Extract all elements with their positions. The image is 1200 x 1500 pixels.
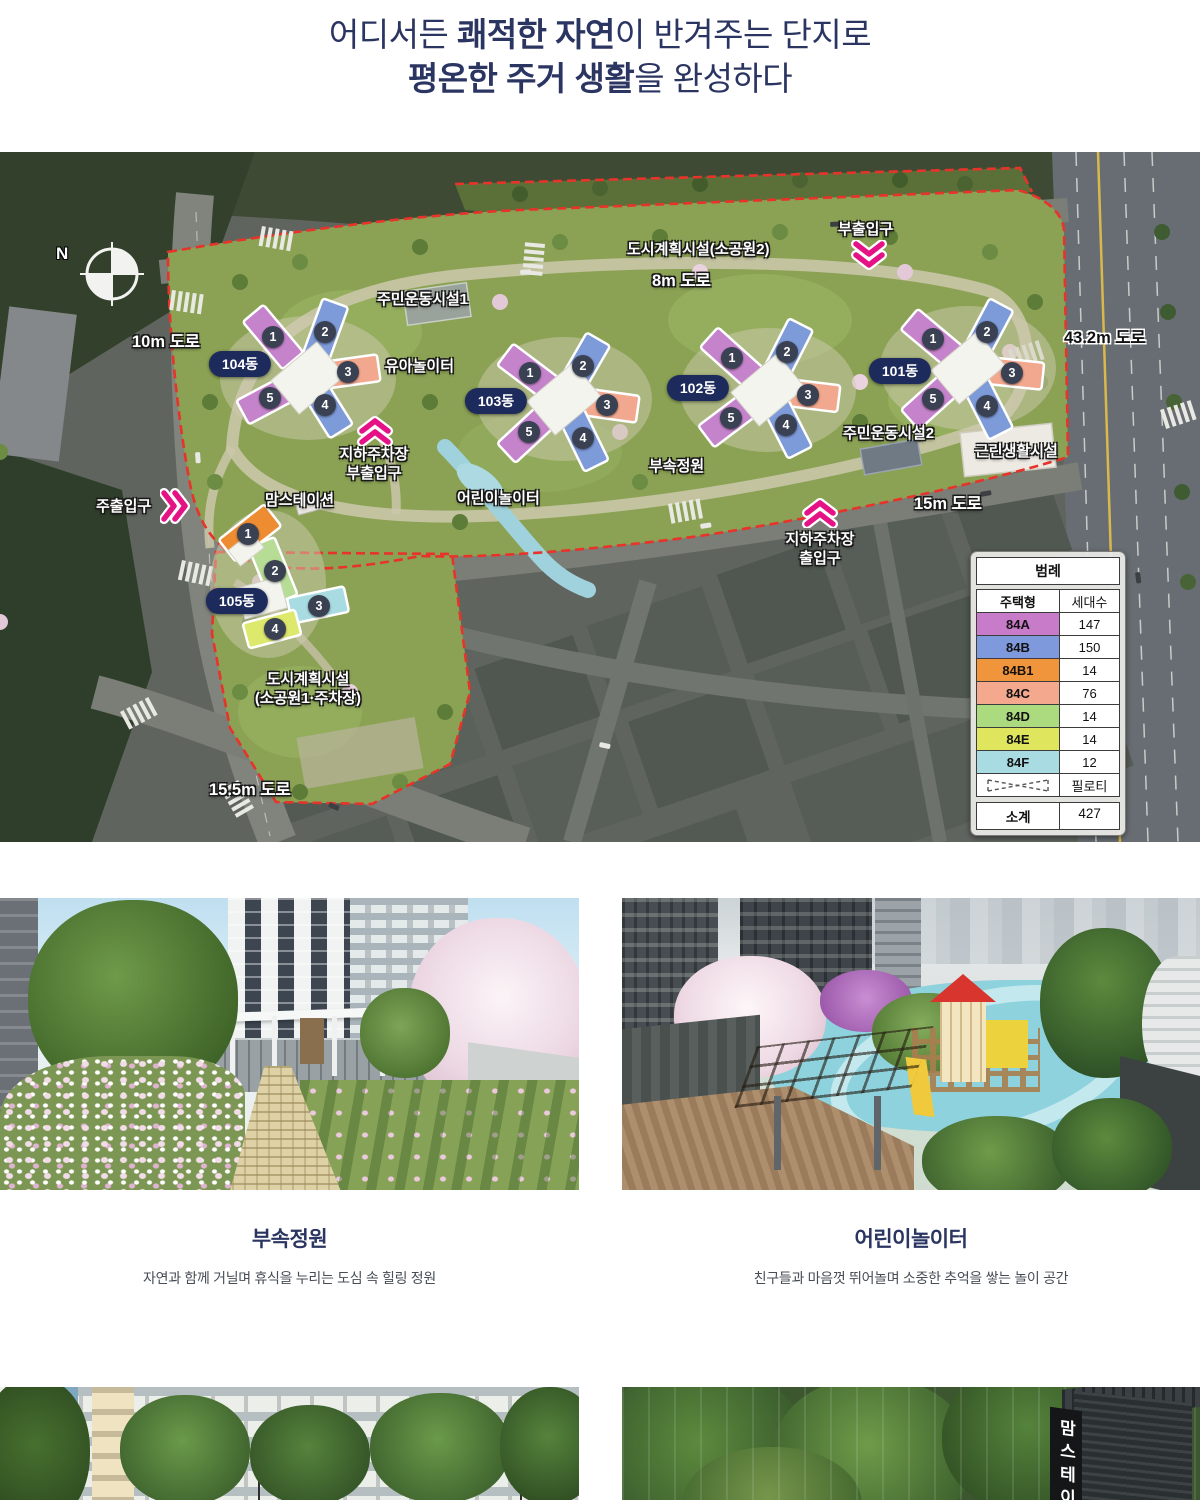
page-title: 어디서든 쾌적한 자연이 반겨주는 단지로 평온한 주거 생활을 완성하다 [0, 0, 1200, 101]
title-text: 을 완성하다 [634, 60, 792, 97]
page: 어디서든 쾌적한 자연이 반겨주는 단지로 평온한 주거 생활을 완성하다 [0, 0, 1200, 1500]
garden-pergola-curtain [300, 1018, 324, 1064]
legend-table: 주택형 세대수 84A 147 84B 150 84B1 14 84C 76 [976, 589, 1120, 797]
label-line: 출입구 [772, 550, 868, 569]
legend-count: 14 [1059, 728, 1119, 751]
label-neighborhood-facility: 근린생활시설 [975, 443, 1058, 462]
unit-circle: 2 [264, 560, 286, 582]
label-underground-main-entrance: 지하주차장 출입구 [772, 531, 868, 569]
unit-circle: 2 [976, 321, 998, 343]
title-text: 어디서든 [329, 16, 457, 53]
label-garden: 부속정원 [649, 458, 704, 477]
unit-circle: 1 [519, 362, 541, 384]
legend-panel: 범례 주택형 세대수 84A 147 84B 150 84B1 14 [970, 551, 1126, 836]
title-emphasis: 평온한 주거 생활 [408, 60, 634, 97]
pill-building-104: 104동 [209, 351, 271, 377]
unit-circle: 2 [572, 355, 594, 377]
garden-pergola-post [332, 1016, 337, 1076]
label-community1: 주민운동시설1 [377, 291, 468, 310]
unit-circle: 1 [721, 347, 743, 369]
unit-circle: 5 [720, 407, 742, 429]
unit-circle: 3 [1001, 362, 1023, 384]
feature-garden: 부속정원 자연과 함께 거닐며 휴식을 누리는 도심 속 힐링 정원 [0, 898, 579, 1288]
label-park1: 도시계획시설 (소공원1·주차장) [248, 671, 368, 709]
legend-header-row: 주택형 세대수 [977, 590, 1120, 613]
legend-row: 84B1 14 [977, 659, 1120, 682]
photo-row-2: 맘스테이션 [0, 1387, 1200, 1500]
legend-row: 84E 14 [977, 728, 1120, 751]
playground-pergola-post [774, 1096, 781, 1170]
playground-playhouse [940, 998, 986, 1082]
unit-circle: 3 [308, 595, 330, 617]
label-park2: 도시계획시설(소공원2) [627, 241, 770, 260]
sub-entrance-arrow-icon [849, 240, 889, 272]
label-toddler-playground: 유아놀이터 [385, 358, 454, 377]
legend-title: 범례 [976, 557, 1120, 585]
legend-piloti-row: 필로티 [977, 774, 1120, 797]
feature-title-garden: 부속정원 [0, 1223, 579, 1253]
pill-building-103: 103동 [465, 388, 527, 414]
playground-playhouse-roof [930, 974, 996, 1002]
label-underground-sub-entrance: 지하주차장 부출입구 [324, 446, 424, 484]
legend-type: 84D [977, 705, 1060, 728]
unit-circle: 2 [776, 341, 798, 363]
pill-building-102: 102동 [667, 375, 729, 401]
unit-circle: 4 [976, 395, 998, 417]
label-line: 부출입구 [324, 465, 424, 484]
label-road-15-5m: 15.5m 도로 [209, 780, 291, 801]
legend-count: 150 [1059, 636, 1119, 659]
legend-type: 84F [977, 751, 1060, 774]
legend-count: 14 [1059, 659, 1119, 682]
photo-street [0, 1387, 579, 1500]
legend-count: 147 [1059, 613, 1119, 636]
photo-playground [622, 898, 1200, 1190]
legend-col-type: 주택형 [977, 590, 1060, 613]
label-road-15m: 15m 도로 [914, 494, 982, 515]
label-line: 지하주차장 [324, 446, 424, 465]
legend-type: 84B [977, 636, 1060, 659]
legend-count: 76 [1059, 682, 1119, 705]
unit-circle: 4 [775, 414, 797, 436]
unit-circle: 3 [797, 384, 819, 406]
legend-type: 84A [977, 613, 1060, 636]
unit-circle: 1 [237, 523, 259, 545]
garden-lawn [300, 1080, 579, 1190]
legend-piloti-label: 필로티 [1059, 774, 1119, 797]
feature-desc-garden: 자연과 함께 거닐며 휴식을 누리는 도심 속 힐링 정원 [0, 1268, 579, 1288]
photo-garden [0, 898, 579, 1190]
street-tree [0, 1387, 90, 1500]
unit-circle: 5 [518, 421, 540, 443]
label-momstation: 맘스테이션 [265, 492, 334, 511]
unit-circle: 4 [314, 394, 336, 416]
label-children-playground: 어린이놀이터 [457, 490, 540, 509]
momstation-booth [1074, 1391, 1192, 1500]
unit-circle: 5 [259, 387, 281, 409]
label-road-8m: 8m 도로 [652, 271, 711, 292]
legend-type: 84B1 [977, 659, 1060, 682]
compass-north-label: N [56, 244, 68, 264]
unit-circle: 4 [572, 427, 594, 449]
unit-circle: 3 [337, 361, 359, 383]
label-road-10m: 10m 도로 [132, 332, 200, 353]
momstation-sign: 맘스테이션 [1050, 1407, 1082, 1500]
street-tree [250, 1405, 370, 1500]
label-line: (소공원1·주차장) [248, 690, 368, 709]
playground-playhouse-wall [986, 1020, 1028, 1068]
legend-total-label: 소계 [977, 803, 1060, 829]
legend-row: 84A 147 [977, 613, 1120, 636]
feature-title-playground: 어린이놀이터 [622, 1223, 1200, 1253]
legend-row: 84B 150 [977, 636, 1120, 659]
label-line: 지하주차장 [772, 531, 868, 550]
label-line: 도시계획시설 [248, 671, 368, 690]
title-line-2: 평온한 주거 생활을 완성하다 [0, 57, 1200, 101]
label-sub-entrance: 부출입구 [838, 221, 893, 240]
playground-bush [922, 1116, 1072, 1190]
street-tree [120, 1395, 250, 1500]
unit-circle: 1 [922, 328, 944, 350]
garden-tree [360, 988, 450, 1078]
title-line-1: 어디서든 쾌적한 자연이 반겨주는 단지로 [0, 13, 1200, 57]
playground-bush [1052, 1098, 1172, 1190]
unit-circle: 4 [264, 618, 286, 640]
label-road-43m: 43.2m 도로 [1064, 328, 1146, 349]
piloti-pattern-icon [977, 774, 1060, 797]
unit-circle: 2 [314, 321, 336, 343]
legend-total-value: 427 [1060, 803, 1119, 829]
legend-count: 14 [1059, 705, 1119, 728]
title-text: 이 반겨주는 단지로 [615, 16, 871, 53]
unit-circle: 5 [922, 388, 944, 410]
garden-flower-field [0, 1056, 245, 1190]
site-plan-map: N 10m 도로 도시계획시설(소공원2) 부출입구 8m 도로 주민운동시설1… [0, 152, 1200, 842]
title-emphasis: 쾌적한 자연 [457, 16, 615, 53]
feature-cards: 부속정원 자연과 함께 거닐며 휴식을 누리는 도심 속 힐링 정원 [0, 898, 1200, 1288]
pill-building-101: 101동 [869, 358, 931, 384]
feature-playground: 어린이놀이터 친구들과 마음껏 뛰어놀며 소중한 추억을 쌓는 놀이 공간 [622, 898, 1200, 1288]
main-entrance-arrow-icon [160, 486, 192, 526]
legend-type: 84E [977, 728, 1060, 751]
underground-sub-arrow-icon [355, 414, 395, 446]
legend-total-row: 소계 427 [976, 802, 1120, 830]
photo-momstation: 맘스테이션 [622, 1387, 1200, 1500]
legend-row: 84D 14 [977, 705, 1120, 728]
legend-row: 84C 76 [977, 682, 1120, 705]
legend-count: 12 [1059, 751, 1119, 774]
street-tree [370, 1393, 510, 1500]
pill-building-105: 105동 [206, 588, 268, 614]
unit-circle: 1 [262, 326, 284, 348]
label-main-entrance: 주출입구 [96, 498, 151, 517]
legend-col-count: 세대수 [1059, 590, 1119, 613]
underground-main-arrow-icon [800, 496, 840, 528]
legend-type: 84C [977, 682, 1060, 705]
playground-pergola-post [874, 1096, 881, 1170]
unit-circle: 3 [596, 394, 618, 416]
label-community2: 주민운동시설2 [843, 425, 934, 444]
feature-desc-playground: 친구들과 마음껏 뛰어놀며 소중한 추억을 쌓는 놀이 공간 [622, 1268, 1200, 1288]
legend-row: 84F 12 [977, 751, 1120, 774]
